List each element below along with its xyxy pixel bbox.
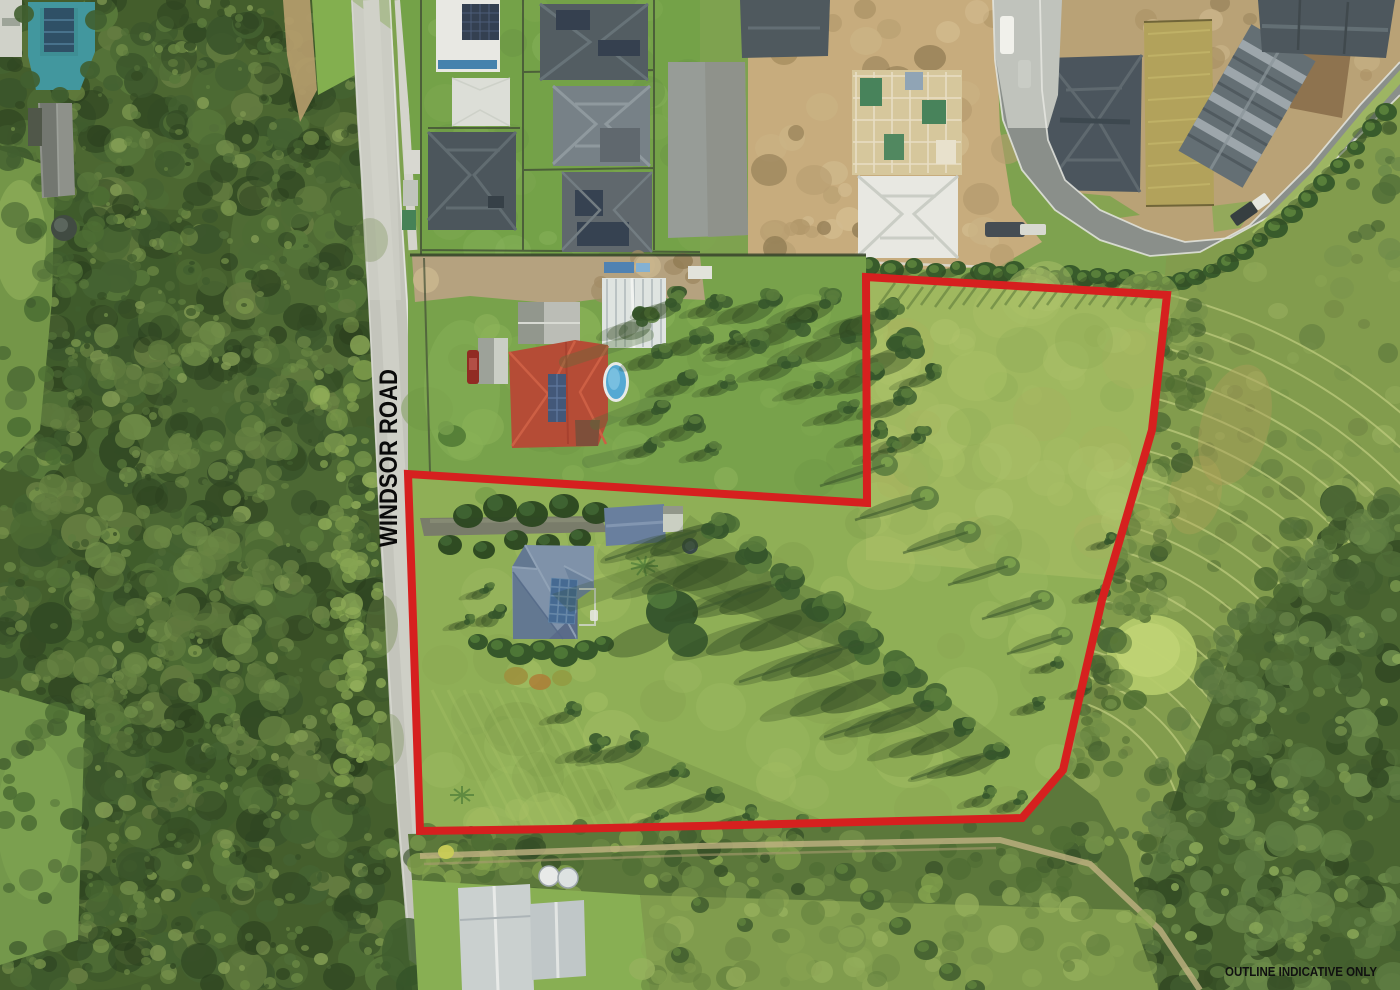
svg-text:WINDSOR ROAD: WINDSOR ROAD: [375, 369, 403, 547]
svg-text:OUTLINE INDICATIVE ONLY: OUTLINE INDICATIVE ONLY: [1225, 965, 1378, 979]
